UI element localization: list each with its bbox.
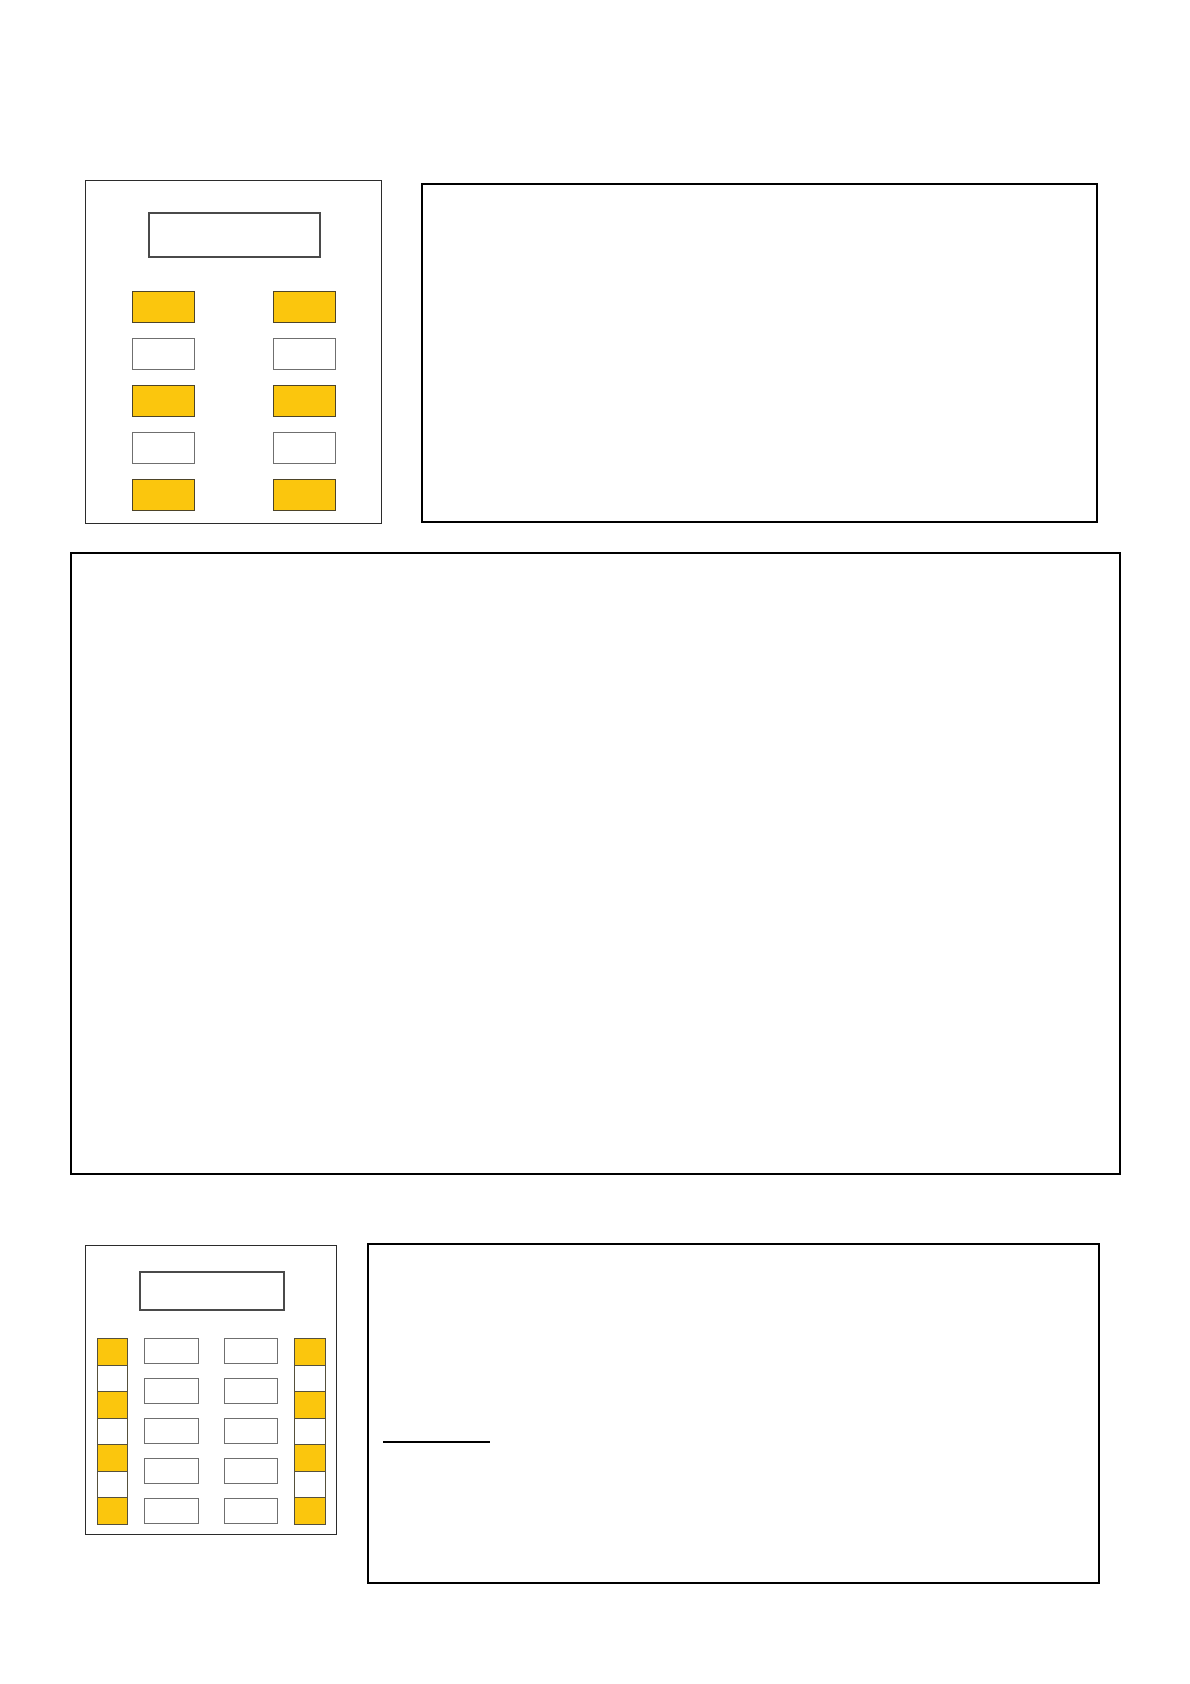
keypad-key[interactable] <box>224 1378 278 1404</box>
strip-key[interactable] <box>97 1497 128 1525</box>
device-key[interactable] <box>132 385 195 417</box>
device-key[interactable] <box>273 338 336 370</box>
side-key-strip-left <box>97 1338 128 1525</box>
strip-key[interactable] <box>97 1471 128 1499</box>
keypad-key[interactable] <box>224 1338 278 1364</box>
device-key[interactable] <box>273 291 336 323</box>
answer-box-top-right <box>421 183 1098 523</box>
keypad-key[interactable] <box>144 1458 199 1484</box>
bottom-device-panel <box>85 1245 337 1535</box>
answer-box-bottom-right <box>367 1243 1100 1584</box>
device-key[interactable] <box>273 479 336 511</box>
strip-key[interactable] <box>294 1444 326 1472</box>
strip-key[interactable] <box>97 1365 128 1393</box>
device-key[interactable] <box>132 291 195 323</box>
strip-key[interactable] <box>294 1418 326 1446</box>
strip-key[interactable] <box>97 1338 128 1366</box>
strip-key[interactable] <box>97 1391 128 1419</box>
keypad-key[interactable] <box>144 1418 199 1444</box>
strip-key[interactable] <box>97 1444 128 1472</box>
device-button-column-left <box>132 291 195 511</box>
keypad-key[interactable] <box>224 1498 278 1524</box>
device-key[interactable] <box>273 385 336 417</box>
keypad-key[interactable] <box>144 1498 199 1524</box>
answer-box-middle <box>70 552 1121 1175</box>
strip-key[interactable] <box>294 1365 326 1393</box>
calculator-display-window <box>139 1271 285 1311</box>
strip-key[interactable] <box>294 1391 326 1419</box>
side-key-strip-right <box>294 1338 326 1525</box>
keypad-key[interactable] <box>224 1458 278 1484</box>
device-button-column-right <box>273 291 336 511</box>
strip-key[interactable] <box>97 1418 128 1446</box>
keypad-column-2 <box>224 1338 278 1524</box>
keypad-key[interactable] <box>224 1418 278 1444</box>
device-display-window <box>148 212 321 258</box>
device-key[interactable] <box>132 338 195 370</box>
strip-key[interactable] <box>294 1338 326 1366</box>
keypad-column-1 <box>144 1338 199 1524</box>
device-key[interactable] <box>273 432 336 464</box>
blank-answer-line <box>383 1441 490 1443</box>
keypad-key[interactable] <box>144 1378 199 1404</box>
worksheet-page <box>0 0 1190 1684</box>
top-device-panel <box>85 180 382 524</box>
keypad-key[interactable] <box>144 1338 199 1364</box>
device-key[interactable] <box>132 432 195 464</box>
strip-key[interactable] <box>294 1497 326 1525</box>
strip-key[interactable] <box>294 1471 326 1499</box>
device-key[interactable] <box>132 479 195 511</box>
